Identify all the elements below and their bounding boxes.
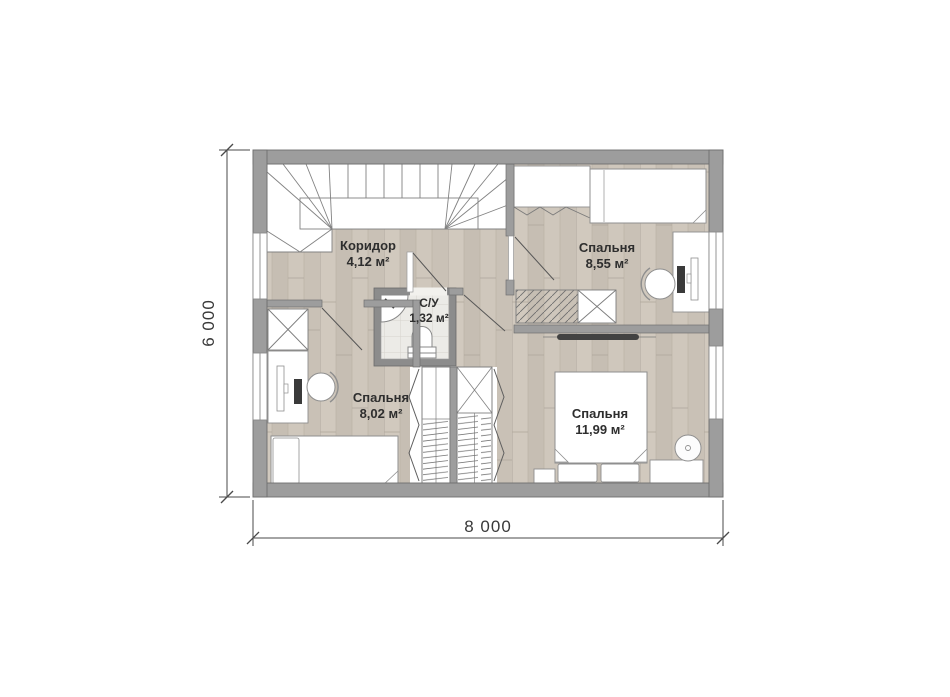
room-name: Спальня: [579, 240, 635, 256]
wardrobe-hatched: [516, 290, 578, 323]
nightstand: [534, 469, 555, 483]
window: [253, 353, 267, 420]
closet-right: [457, 367, 492, 483]
pouf: [675, 435, 701, 461]
desk: [673, 232, 709, 312]
wardrobe-x: [268, 309, 308, 350]
tv-board: [557, 334, 639, 340]
monitor: [277, 366, 284, 411]
monitor: [691, 258, 698, 300]
room-name: Коридор: [340, 238, 396, 254]
room-label-bedroom-bottom-right: Спальня 11,99 м²: [572, 406, 628, 438]
room-label-bedroom-left: Спальня 8,02 м²: [353, 390, 409, 422]
closet-left: [422, 367, 450, 483]
room-area: 11,99 м²: [572, 422, 628, 438]
pillow: [273, 438, 299, 484]
room-label-corridor: Коридор 4,12 м²: [340, 238, 396, 270]
room-area: 4,12 м²: [340, 254, 396, 270]
room-area: 8,02 м²: [353, 406, 409, 422]
room-label-bedroom-top-right: Спальня 8,55 м²: [579, 240, 635, 272]
single-bed: [590, 169, 706, 223]
bench: [650, 460, 703, 483]
room-name: С/У: [409, 296, 449, 311]
keyboard: [294, 379, 302, 404]
closet-front: [514, 166, 590, 207]
dimension-height-line: [219, 144, 250, 503]
keyboard: [677, 266, 685, 293]
bathroom-door-opening: [410, 288, 447, 296]
pillow: [601, 464, 639, 482]
single-bed: [271, 436, 398, 486]
wardrobe-x: [578, 290, 616, 323]
room-area: 1,32 м²: [409, 311, 449, 326]
window: [709, 232, 723, 309]
floor-plan-canvas: Коридор 4,12 м² Спальня 8,55 м² С/У 1,32…: [0, 0, 950, 697]
room-name: Спальня: [572, 406, 628, 422]
dimension-height-label: 6 000: [199, 299, 219, 347]
window: [253, 233, 267, 299]
floor-plan-drawing: [0, 0, 950, 697]
window: [709, 346, 723, 419]
dimension-width-label: 8 000: [464, 517, 512, 537]
room-area: 8,55 м²: [579, 256, 635, 272]
pillow: [558, 464, 597, 482]
room-name: Спальня: [353, 390, 409, 406]
room-label-bathroom: С/У 1,32 м²: [409, 296, 449, 326]
desk: [268, 351, 308, 423]
